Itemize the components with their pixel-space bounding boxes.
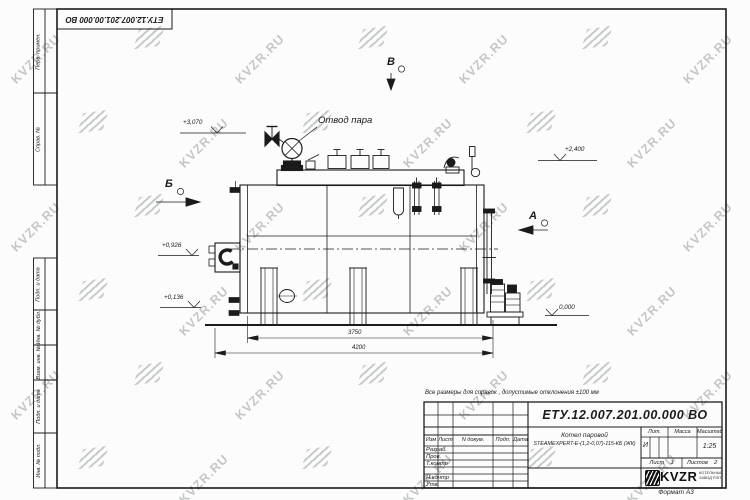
scale-header: Масштаб <box>697 429 722 435</box>
top-stamp-doc-number: ЕТУ.12.007.201.00.000 ВО <box>57 9 172 29</box>
title-doc-number: ЕТУ.12.007.201.00.000 ВО <box>528 404 722 427</box>
scale-value: 1:25 <box>697 443 722 450</box>
sheet-label: Лист <box>649 460 664 466</box>
margin-label-inv-dubl: Инв. № дубл. <box>34 310 45 345</box>
manhole <box>277 290 297 303</box>
rev-header-podp: Подп. <box>493 437 513 443</box>
rev-header-izm: Изм <box>424 437 438 443</box>
boiler-supports <box>260 268 478 325</box>
company-subtitle-line1: КОТЕЛЬНЫЙ <box>699 471 723 475</box>
rev-header-list: Лист <box>438 437 453 443</box>
product-name-line2: STEAMEXPERT-Е-(1,2-0,07)-115-КБ (ЖК) <box>528 441 641 447</box>
product-name-line1: Котел паровой <box>528 432 641 439</box>
sheets-total-cell: Листов 2 <box>682 460 722 466</box>
drawing-sheet: KVZR.RUKVZR.RUKVZR.RUKVZR.RUKVZR.RUKVZR.… <box>0 0 750 500</box>
rev-header-ndokum: N докум. <box>453 437 493 443</box>
sheet-value: 1 <box>670 460 673 466</box>
row-label-tkontr: Т.контр <box>426 461 448 467</box>
row-label-razrab: Разраб. <box>426 447 447 453</box>
elevation-0926: +0,926 <box>162 242 181 249</box>
row-label-nkontr: Н.контр <box>426 475 449 481</box>
feed-pump <box>487 280 523 325</box>
mass-header: Масса <box>668 429 697 435</box>
vent-valve <box>444 157 480 177</box>
sheets-value: 2 <box>714 460 717 466</box>
boiler-body <box>228 170 498 313</box>
elevation-3070: +3,070 <box>183 119 202 126</box>
level-gauges <box>394 178 442 220</box>
margin-label-podp-data-2: Подп. и дата <box>34 380 45 433</box>
rev-header-data: Дата <box>513 437 528 443</box>
left-wall-fittings <box>229 181 240 316</box>
elevation-0136: +0,136 <box>164 294 183 301</box>
margin-label-perv-primen: Перв. примен. <box>34 9 45 93</box>
lit-value: И <box>641 442 650 449</box>
company-subtitle-line2: ЗАВОД РЭП <box>699 476 721 480</box>
row-label-prov: Пров. <box>426 454 441 460</box>
dimension-3750-text: 3750 <box>348 330 361 336</box>
steam-outlet-label: Отвод пара <box>318 115 372 126</box>
sheets-label: Листов <box>687 460 708 466</box>
margin-label-podp-data-1: Подп. и дата <box>34 258 45 310</box>
row-label-utv: Утв. <box>426 482 439 488</box>
margin-label-vzam-inv: Взам. инв. № <box>34 345 45 380</box>
stack-pipe <box>470 147 476 171</box>
steam-valve <box>265 127 303 171</box>
format-label: Формат А3 <box>641 489 711 496</box>
view-b-label: Б <box>165 178 173 190</box>
lit-header: Лит. <box>641 429 668 435</box>
kvzr-logo-icon <box>645 470 660 486</box>
view-a-label: А <box>529 210 537 222</box>
view-v-label: В <box>387 56 395 68</box>
kvzr-logo-text: KVZR <box>660 469 697 484</box>
margin-label-inv-podl: Инв. № подл. <box>34 433 45 488</box>
tolerances-note: Все размеры для справок , допустимые отк… <box>425 390 599 396</box>
margin-label-sprav-no: Справ. № <box>34 93 45 185</box>
safety-valve <box>306 155 319 170</box>
elevation-0000: 0,000 <box>559 304 575 311</box>
burner <box>209 243 240 272</box>
sheet-number-cell: Лист 1 <box>641 460 682 466</box>
dimension-3750-lines <box>248 316 494 343</box>
top-hatch-fittings <box>328 150 389 169</box>
steam-outlet-leader <box>299 127 317 141</box>
elevation-2400: +2,400 <box>565 146 584 153</box>
dimension-4200-text: 4200 <box>352 345 365 351</box>
